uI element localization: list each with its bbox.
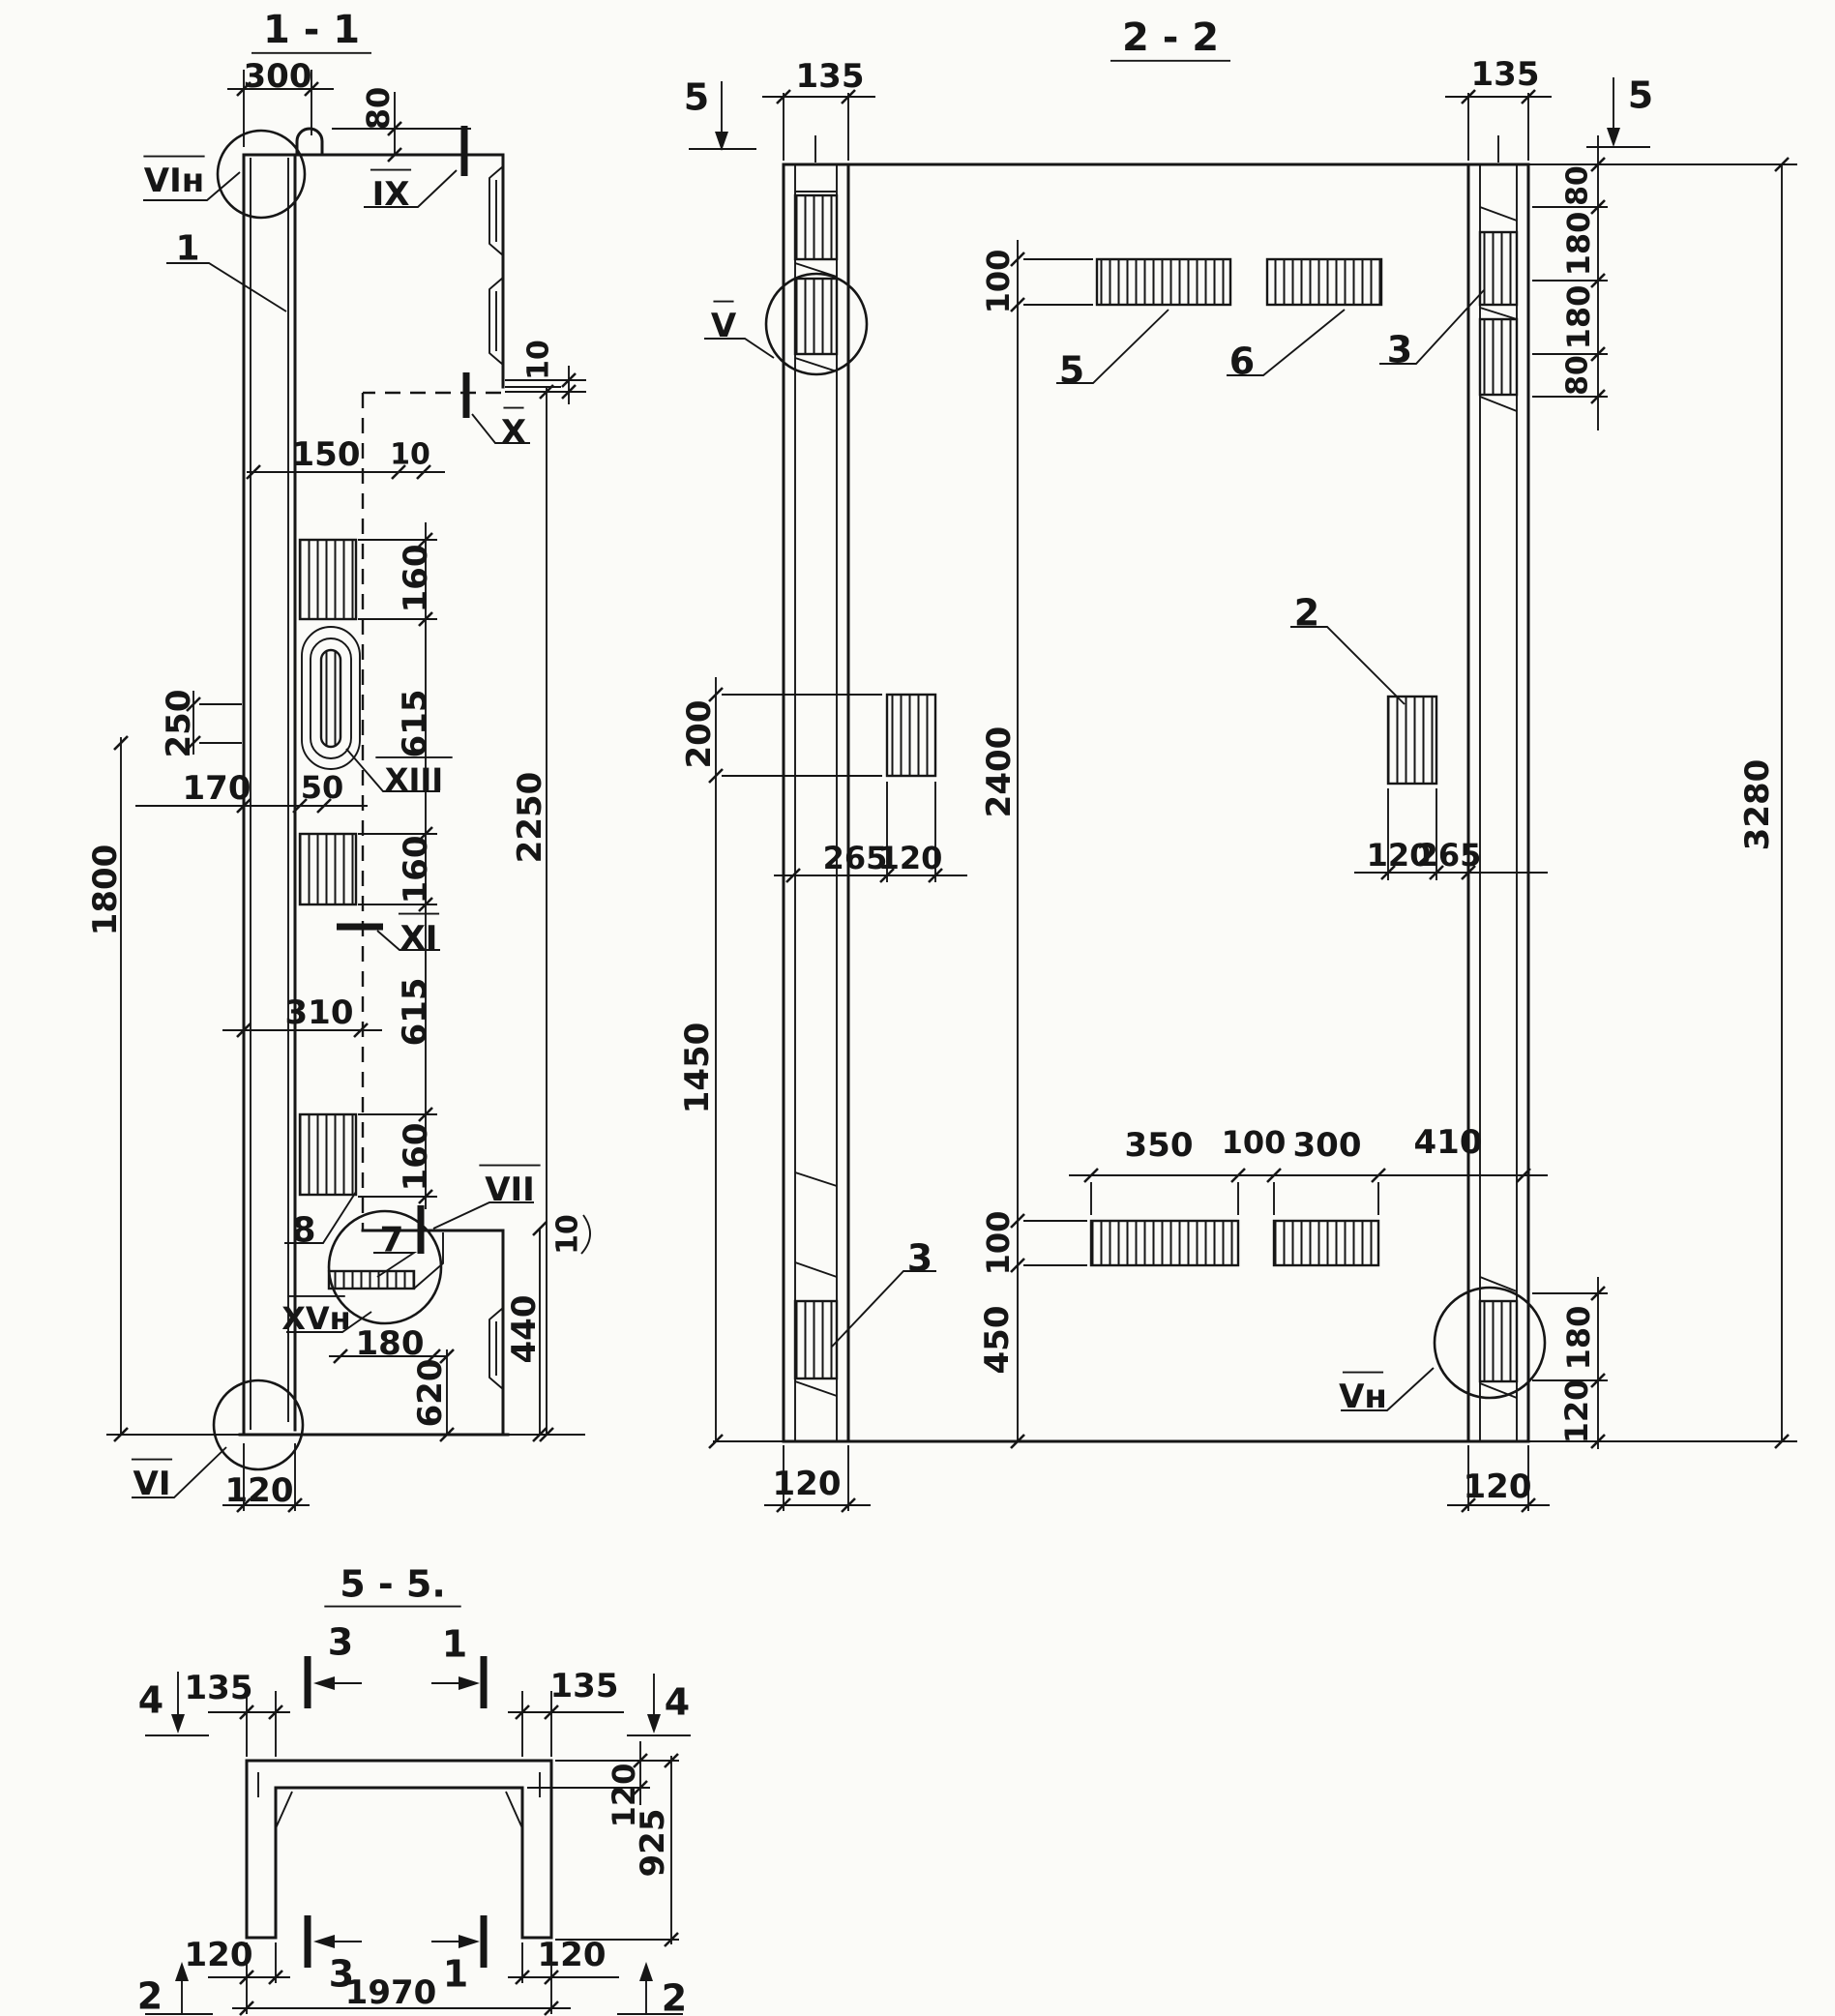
- svg-text:5 - 5.: 5 - 5.: [340, 1562, 446, 1605]
- svg-text:135: 135: [796, 57, 865, 96]
- right-rib: [1435, 135, 1545, 1441]
- dim-1450: 1450: [678, 1023, 717, 1114]
- svg-text:180: 180: [1560, 1306, 1597, 1371]
- svg-text:450: 450: [978, 1306, 1017, 1375]
- svg-text:VI: VI: [133, 1465, 171, 1503]
- dim-410: 410: [1414, 1123, 1483, 1162]
- mark-V: V: [711, 302, 737, 345]
- dim-3280: 3280: [1738, 759, 1777, 851]
- svg-text:925: 925: [634, 1809, 672, 1878]
- svg-text:IX: IX: [372, 175, 410, 214]
- mark-IX: IX: [370, 170, 411, 214]
- rib-embed: [795, 195, 837, 259]
- dim-300: 300: [244, 57, 312, 96]
- leader-3-right: 3: [1387, 328, 1412, 371]
- svg-text:160: 160: [397, 545, 435, 613]
- svg-text:350: 350: [1125, 1126, 1194, 1165]
- svg-text:1: 1: [175, 229, 199, 269]
- dim-10-top: 10: [522, 340, 556, 380]
- dim-200: 200: [680, 700, 719, 769]
- marker-4-right: 4: [665, 1680, 690, 1723]
- svg-text:120: 120: [878, 840, 943, 876]
- svg-text:100: 100: [1222, 1124, 1287, 1161]
- detail-circle-VI: [214, 1380, 303, 1469]
- dim-135-right: 135: [1471, 55, 1540, 94]
- dim-100-b1: 100: [1222, 1124, 1287, 1161]
- slot-detail-XIII: [302, 627, 360, 769]
- face-embed-5: [1097, 259, 1230, 305]
- rib-embed: [795, 279, 837, 354]
- marker-4-left: 4: [138, 1678, 163, 1721]
- dim-310: 310: [285, 993, 354, 1032]
- title-1-1: 1 - 1: [252, 8, 371, 53]
- dim-1800: 1800: [86, 845, 125, 936]
- title-5-5: 5 - 5.: [324, 1562, 460, 1606]
- dim-120-5bl: 120: [185, 1936, 253, 1974]
- svg-text:VII: VII: [485, 1171, 535, 1209]
- svg-text:8: 8: [291, 1211, 315, 1251]
- svg-text:1 - 1: 1 - 1: [263, 8, 360, 52]
- dim-120-colR: 120: [1464, 1468, 1532, 1506]
- svg-text:150: 150: [292, 435, 361, 474]
- marker-2-left: 2: [137, 1974, 163, 2016]
- leader-2: 2: [1294, 591, 1319, 634]
- face-embed: [1091, 1221, 1238, 1265]
- svg-text:2: 2: [137, 1974, 163, 2016]
- svg-text:135: 135: [1471, 55, 1540, 94]
- dim-100-top: 100: [980, 250, 1017, 314]
- leader-3-left: 3: [907, 1236, 932, 1279]
- svg-text:100: 100: [980, 1211, 1017, 1276]
- svg-text:80: 80: [1561, 165, 1595, 206]
- svg-text:ХVн: ХVн: [281, 1300, 351, 1337]
- leader-5: 5: [1059, 348, 1084, 391]
- svg-text:120: 120: [1464, 1468, 1532, 1506]
- dim-615-b: 615: [396, 978, 434, 1047]
- mark-XI: XI: [399, 914, 439, 958]
- svg-text:10: 10: [551, 1214, 585, 1255]
- svg-text:160: 160: [397, 1123, 435, 1192]
- title-2-2: 2 - 2: [1110, 15, 1230, 61]
- svg-text:440: 440: [505, 1295, 544, 1364]
- dim-250: 250: [160, 690, 198, 758]
- svg-text:10: 10: [522, 340, 556, 380]
- dim-160-c: 160: [397, 1123, 435, 1192]
- mark-X: X: [501, 408, 526, 452]
- svg-text:X: X: [501, 413, 526, 452]
- svg-text:265: 265: [1417, 837, 1482, 874]
- svg-text:6: 6: [1229, 340, 1255, 382]
- leader-1: 1: [175, 229, 199, 269]
- marker-5-right: 5: [1628, 74, 1653, 116]
- marker-2-right: 2: [662, 1976, 687, 2016]
- svg-text:7: 7: [379, 1221, 403, 1260]
- mark-VII: VII: [479, 1166, 540, 1209]
- rib-embed: [1480, 1301, 1517, 1381]
- dim-135-left: 135: [796, 57, 865, 96]
- embed-plate: [300, 1114, 356, 1195]
- svg-text:XI: XI: [400, 919, 438, 958]
- dim-160-b: 160: [397, 836, 435, 904]
- dim-2250: 2250: [511, 772, 549, 864]
- section-marker-3-top: [308, 1656, 362, 1708]
- svg-text:5: 5: [1059, 348, 1084, 391]
- left-rib: [766, 135, 867, 1441]
- mark-XIII: XIII: [375, 757, 452, 798]
- svg-text:135: 135: [185, 1669, 253, 1707]
- svg-text:300: 300: [1293, 1126, 1362, 1165]
- svg-text:200: 200: [680, 700, 719, 769]
- dim-1970: 1970: [345, 1973, 437, 2012]
- svg-text:310: 310: [285, 993, 354, 1032]
- svg-text:2250: 2250: [511, 772, 549, 864]
- rib-embed: [1480, 319, 1517, 395]
- svg-text:4: 4: [665, 1680, 690, 1723]
- dim-615-a: 615: [396, 690, 434, 758]
- svg-text:170: 170: [183, 769, 252, 808]
- svg-text:3280: 3280: [1738, 759, 1777, 851]
- dim-120-colL: 120: [773, 1465, 842, 1503]
- svg-text:Vн: Vн: [1339, 1378, 1387, 1416]
- leader-6: 6: [1229, 340, 1255, 382]
- dim-120-mid-left: 120: [878, 840, 943, 876]
- dim-180-r2: 180: [1560, 285, 1597, 350]
- svg-text:1: 1: [443, 1952, 468, 1995]
- dim-925: 925: [634, 1809, 672, 1878]
- svg-text:620: 620: [411, 1359, 450, 1428]
- dim-120-5br: 120: [538, 1936, 607, 1974]
- dim-135-5L: 135: [185, 1669, 253, 1707]
- leader-7: 7: [379, 1221, 403, 1260]
- drawing-labels: 1 - 130080VIнIX110X15010160615XIII250170…: [86, 8, 1777, 2016]
- svg-text:180: 180: [1560, 285, 1597, 350]
- svg-text:4: 4: [138, 1678, 163, 1721]
- dim-80-r2: 80: [1561, 355, 1595, 396]
- svg-text:3: 3: [907, 1236, 932, 1279]
- dim-265-right: 265: [1417, 837, 1482, 874]
- dim-100-b2: 100: [980, 1211, 1017, 1276]
- svg-text:2 - 2: 2 - 2: [1122, 15, 1219, 60]
- dim-10-flange: 10: [390, 438, 430, 472]
- svg-text:80: 80: [360, 87, 397, 131]
- dim-620: 620: [411, 1359, 450, 1428]
- svg-text:50: 50: [301, 769, 344, 806]
- svg-text:5: 5: [1628, 74, 1653, 116]
- svg-text:XIII: XIII: [385, 761, 443, 798]
- dim-10-step: 10: [551, 1214, 585, 1255]
- rib-embed: [795, 1301, 837, 1379]
- dim-180-r1: 180: [1560, 212, 1597, 277]
- marker-1-bot: 1: [443, 1952, 468, 1995]
- mark-VIn: VIн: [143, 157, 204, 200]
- svg-text:120: 120: [1558, 1379, 1595, 1444]
- dim-440: 440: [505, 1295, 544, 1364]
- marker-1-top: 1: [442, 1622, 467, 1665]
- drawing-canvas: 1 - 130080VIнIX110X15010160615XIII250170…: [0, 0, 1835, 2016]
- dim-180-br: 180: [1560, 1306, 1597, 1371]
- dimension-lines-2-2: [709, 90, 1789, 1512]
- dim-180-weld: 180: [356, 1324, 425, 1363]
- face-embed: [1274, 1221, 1378, 1265]
- face-embed-2: [1388, 697, 1436, 784]
- dim-80-r1: 80: [1561, 165, 1595, 206]
- mark-XVn: ХVн: [281, 1296, 351, 1337]
- svg-text:3: 3: [1387, 328, 1412, 371]
- embed-plate: [300, 834, 356, 904]
- svg-text:V: V: [711, 307, 737, 345]
- svg-text:615: 615: [396, 978, 434, 1047]
- svg-text:160: 160: [397, 836, 435, 904]
- svg-text:2: 2: [662, 1976, 687, 2016]
- mark-Vn: Vн: [1339, 1373, 1387, 1416]
- face-embed-6: [1267, 259, 1381, 305]
- svg-text:120: 120: [773, 1465, 842, 1503]
- svg-text:80: 80: [1561, 355, 1595, 396]
- dim-170: 170: [183, 769, 252, 808]
- svg-text:1800: 1800: [86, 845, 125, 936]
- svg-text:180: 180: [356, 1324, 425, 1363]
- lifting-loop: [297, 129, 322, 155]
- svg-text:410: 410: [1414, 1123, 1483, 1162]
- view-section-2-2: [689, 77, 1797, 1512]
- marker-5-left: 5: [684, 75, 709, 118]
- svg-text:135: 135: [550, 1667, 619, 1705]
- svg-text:120: 120: [225, 1471, 294, 1510]
- rib-embed: [1480, 232, 1517, 305]
- dim-120-br: 120: [1558, 1379, 1595, 1444]
- svg-text:2: 2: [1294, 591, 1319, 634]
- dim-160-a: 160: [397, 545, 435, 613]
- svg-text:3: 3: [328, 1620, 353, 1663]
- svg-text:100: 100: [980, 250, 1017, 314]
- mark-VI: VI: [132, 1460, 172, 1503]
- svg-text:1450: 1450: [678, 1023, 717, 1114]
- svg-text:2400: 2400: [980, 726, 1019, 818]
- svg-text:615: 615: [396, 690, 434, 758]
- svg-text:120: 120: [185, 1936, 253, 1974]
- dim-2400: 2400: [980, 726, 1019, 818]
- dim-300-b: 300: [1293, 1126, 1362, 1165]
- svg-text:250: 250: [160, 690, 198, 758]
- detail-circle-VIn: [218, 131, 305, 218]
- dim-80-top: 80: [360, 87, 397, 131]
- dim-150: 150: [292, 435, 361, 474]
- dim-50: 50: [301, 769, 344, 806]
- dim-450: 450: [978, 1306, 1017, 1375]
- svg-text:10: 10: [390, 438, 430, 472]
- dim-135-5R: 135: [550, 1667, 619, 1705]
- drawing-page: 1 - 130080VIнIX110X15010160615XIII250170…: [0, 0, 1835, 2016]
- svg-text:VIн: VIн: [144, 162, 204, 200]
- dim-350: 350: [1125, 1126, 1194, 1165]
- svg-text:300: 300: [244, 57, 312, 96]
- svg-text:1970: 1970: [345, 1973, 437, 2012]
- dim-120-wall: 120: [225, 1471, 294, 1510]
- leader-8: 8: [291, 1211, 315, 1251]
- dim-ticks: [709, 90, 1789, 1512]
- embed-plate: [300, 540, 356, 619]
- svg-text:180: 180: [1560, 212, 1597, 277]
- svg-text:120: 120: [538, 1936, 607, 1974]
- svg-text:1: 1: [442, 1622, 467, 1665]
- svg-text:5: 5: [684, 75, 709, 118]
- marker-3-top: 3: [328, 1620, 353, 1663]
- face-embed: [887, 695, 935, 776]
